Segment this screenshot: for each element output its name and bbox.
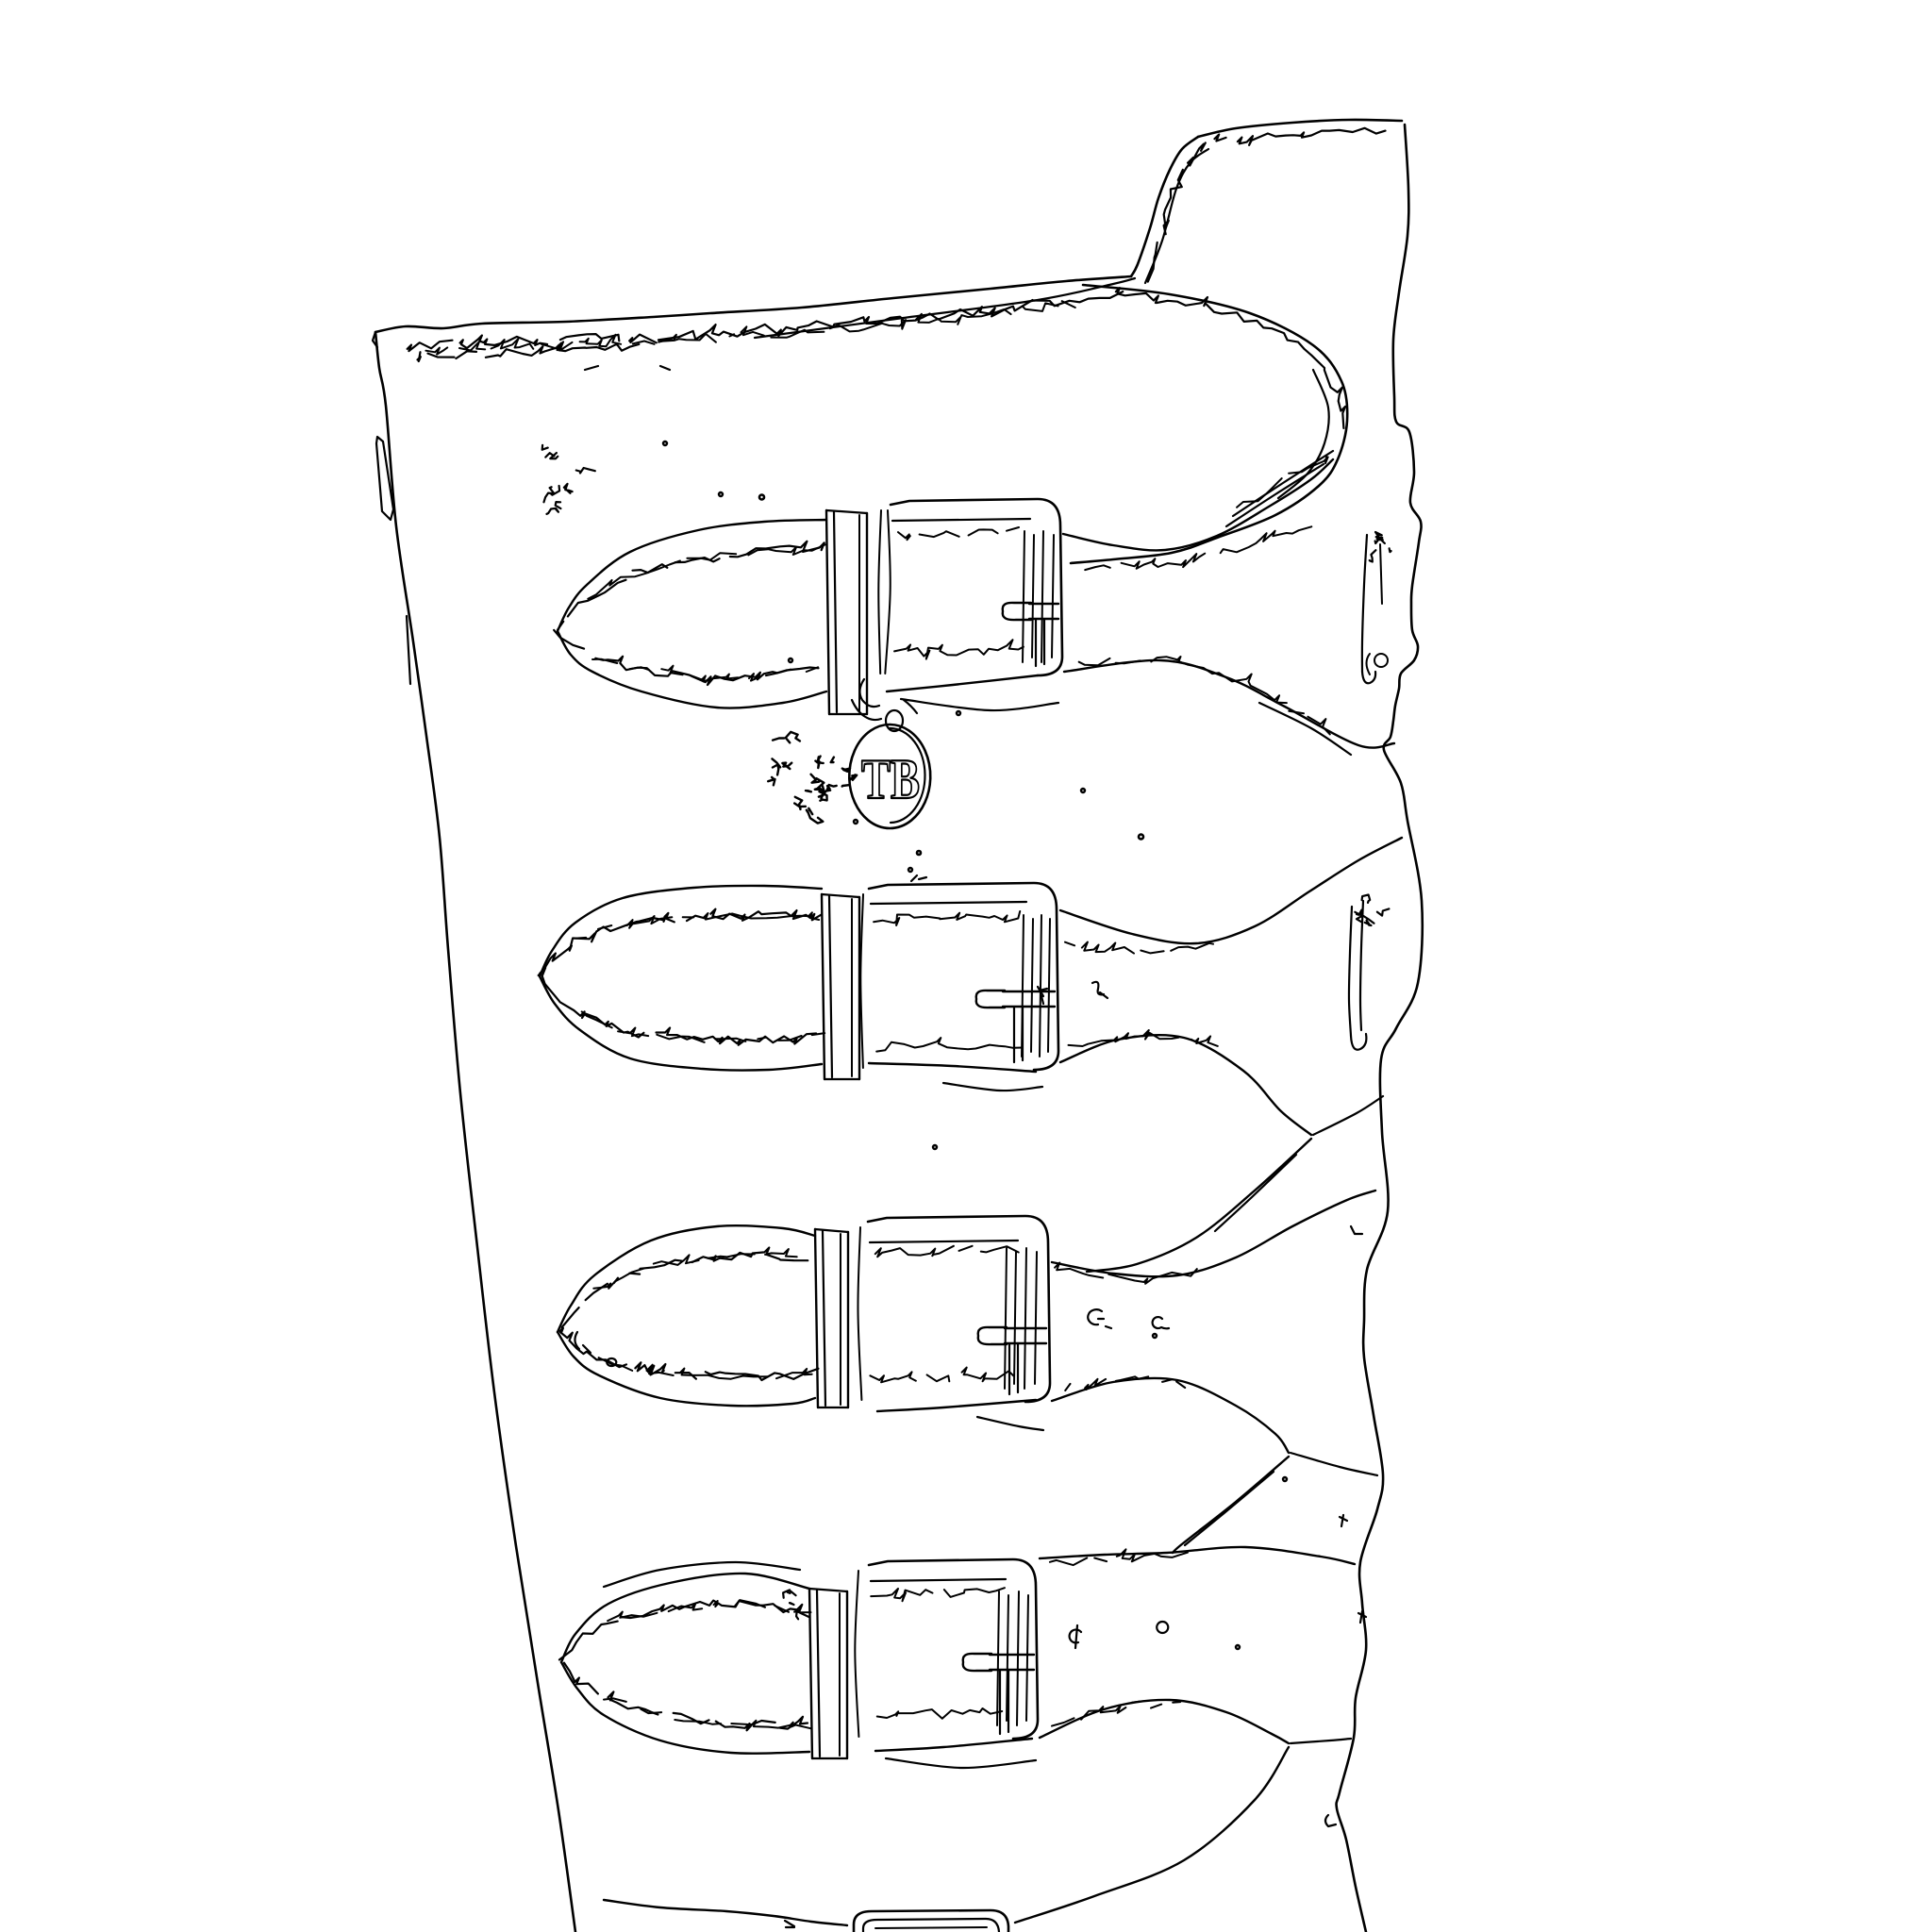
svg-text:TB: TB [861,748,920,810]
